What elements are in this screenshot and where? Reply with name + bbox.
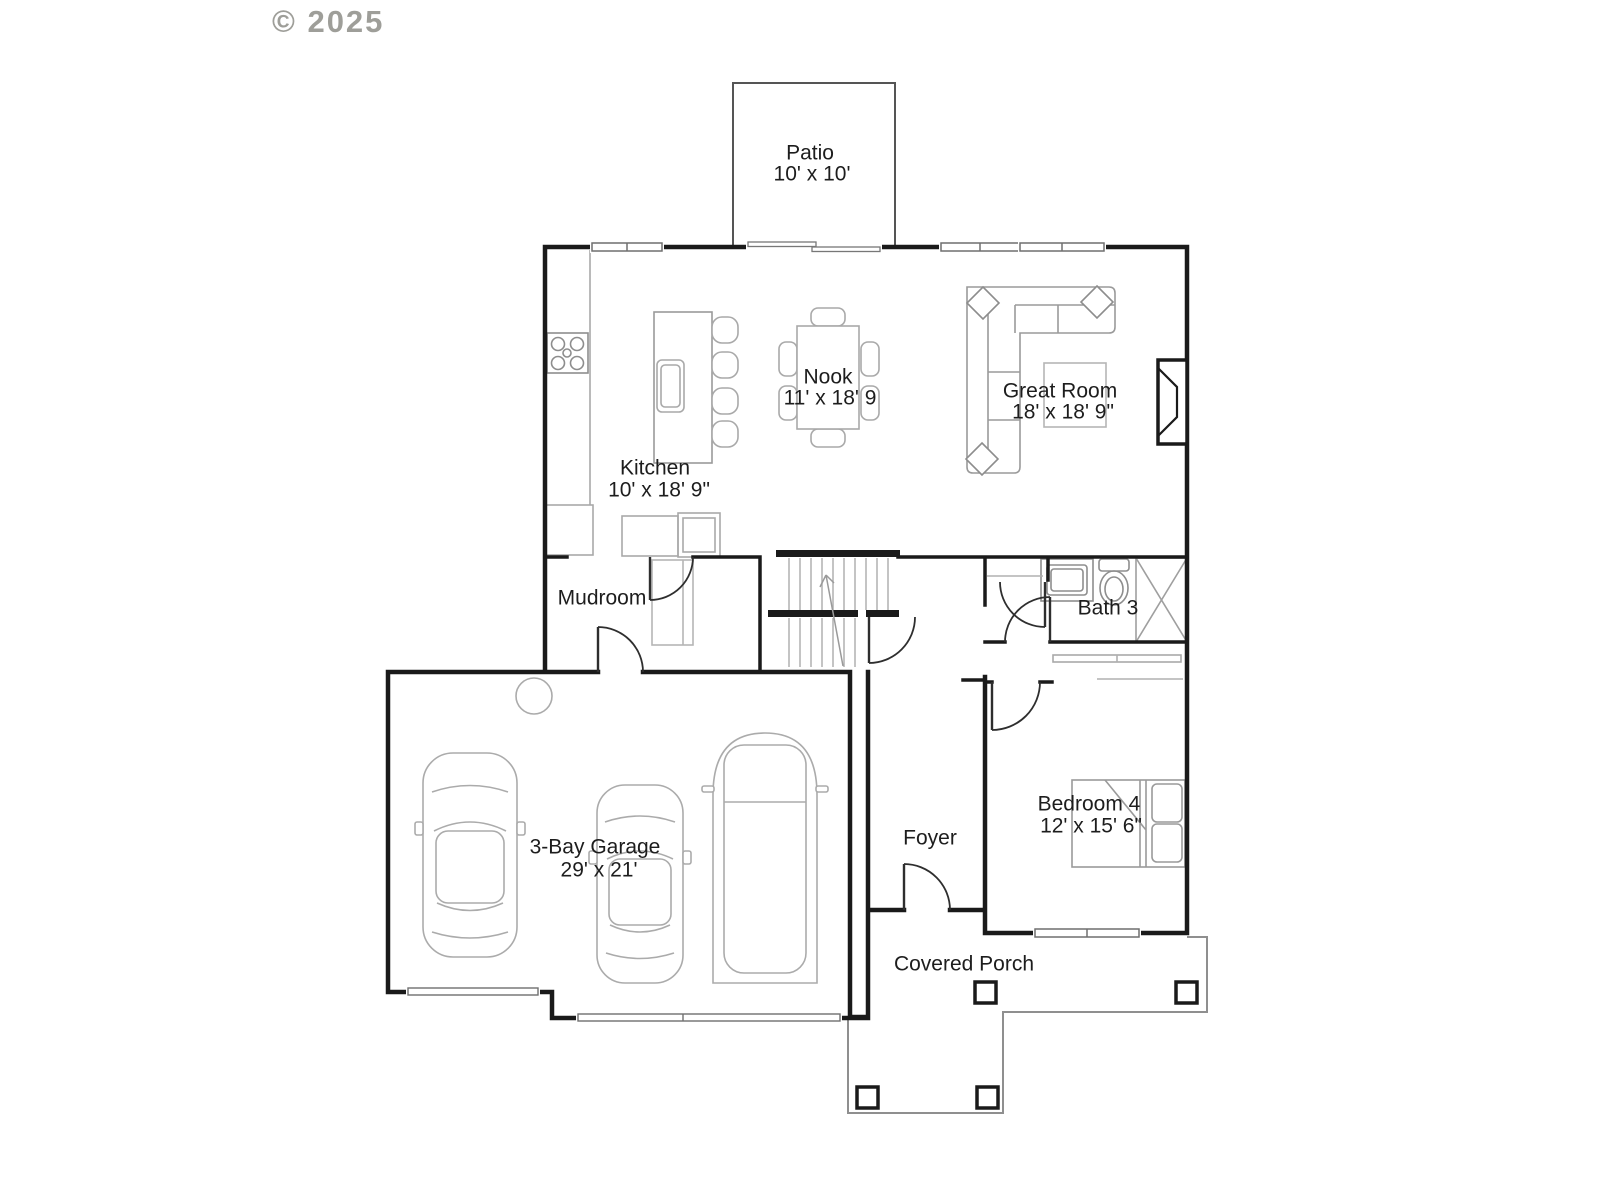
nook-label: Nook xyxy=(803,366,853,389)
bedroom-window xyxy=(1033,927,1141,939)
great-room-label: Great Room xyxy=(1003,380,1117,403)
garage-label: 3-Bay Garage xyxy=(530,836,661,859)
nook-chair xyxy=(861,342,879,376)
porch-post xyxy=(977,1087,998,1108)
island-stools xyxy=(712,317,738,447)
garage-door-single xyxy=(406,986,540,997)
nook-chair xyxy=(811,308,845,326)
nook-dims: 11' x 18' 9 xyxy=(784,387,877,410)
bath3-label: Bath 3 xyxy=(1078,597,1139,620)
window xyxy=(1018,241,1106,253)
porch-post xyxy=(857,1087,878,1108)
van xyxy=(702,733,828,983)
patio-label: Patio xyxy=(786,142,834,165)
refrigerator xyxy=(622,516,678,556)
nook-chair xyxy=(811,429,845,447)
patio-sliding-door xyxy=(746,240,882,253)
kitchen-label: Kitchen xyxy=(620,457,690,480)
bedroom4-dims: 12' x 15' 6" xyxy=(1040,815,1142,838)
kitchen-dims: 10' x 18' 9" xyxy=(608,479,710,502)
garage-to-mudroom-door xyxy=(598,627,643,672)
car-1 xyxy=(415,753,525,957)
mudroom-closet xyxy=(652,560,693,645)
mudroom-label: Mudroom xyxy=(558,587,647,610)
patio-dims: 10' x 10' xyxy=(774,163,851,186)
stairs xyxy=(768,550,900,667)
patio: Patio 10' x 10' xyxy=(733,83,895,246)
bed-pillow xyxy=(1152,824,1182,862)
floor-plan-drawing: © 2025 Patio 10' x 10' Covered Porch xyxy=(0,0,1600,1200)
foyer-label: Foyer xyxy=(903,827,957,850)
pantry-door xyxy=(650,557,693,600)
covered-porch: Covered Porch xyxy=(848,937,1207,1113)
stair-treads-lower xyxy=(789,618,855,667)
nook-chair xyxy=(779,342,797,376)
kitchen-island xyxy=(654,312,712,463)
bedroom-door xyxy=(992,682,1040,730)
bedroom4-label: Bedroom 4 xyxy=(1038,793,1141,816)
garage-contents xyxy=(415,678,828,983)
cooktop xyxy=(547,333,588,373)
copyright-text: © 2025 xyxy=(272,4,384,39)
fireplace xyxy=(1158,360,1187,444)
covered-porch-label: Covered Porch xyxy=(894,953,1034,976)
floor-plan-page: © 2025 Patio 10' x 10' Covered Porch xyxy=(0,0,1600,1200)
linen-closet-door xyxy=(987,576,1045,627)
range xyxy=(678,513,720,557)
bath-door xyxy=(1005,597,1050,642)
car-2 xyxy=(589,785,691,983)
window xyxy=(590,241,664,253)
kitchen-fixtures xyxy=(546,250,738,557)
mudroom-fixtures xyxy=(652,560,693,645)
stair-rail-top xyxy=(776,550,900,557)
great-room-dims: 18' x 18' 9" xyxy=(1012,401,1114,424)
garage-dims: 29' x 21' xyxy=(561,859,638,882)
window xyxy=(939,241,1021,253)
shower xyxy=(1136,558,1187,642)
stair-rail-mid xyxy=(768,610,858,617)
front-entry-door xyxy=(904,864,950,910)
porch-post xyxy=(1176,982,1197,1003)
water-heater xyxy=(516,678,552,714)
stair-rail-mid xyxy=(866,610,899,617)
under-stair-door xyxy=(869,617,915,663)
garage-door-double xyxy=(576,1012,842,1023)
stair-treads-upper xyxy=(789,558,888,610)
porch-post xyxy=(975,982,996,1003)
stair-direction-arrow xyxy=(820,575,843,666)
range-inner xyxy=(683,518,715,552)
kitchen-pantry-cabinet xyxy=(546,505,593,555)
bed-pillow xyxy=(1152,784,1182,822)
